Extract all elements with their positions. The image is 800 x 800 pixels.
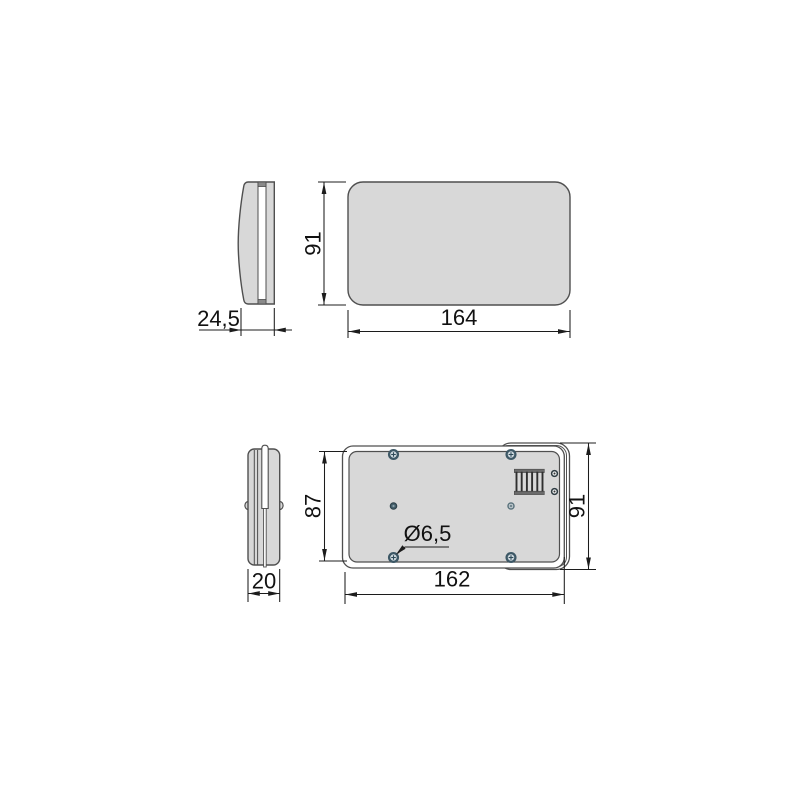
dimension-front-width: 164: [348, 305, 570, 338]
dimension-label-base-depth: 20: [252, 569, 276, 594]
back-inner-panel: [349, 452, 560, 563]
arrowhead: [346, 592, 358, 597]
dimension-label-side-depth: 24,5: [197, 306, 240, 331]
hook-tab: [262, 445, 268, 508]
centre-hole-right: [508, 503, 514, 509]
mounting-screw-top-left: [389, 450, 398, 459]
arrowhead: [322, 293, 327, 305]
side-profile-bottom-cap: [258, 300, 266, 305]
side-view-bottom: [245, 445, 283, 567]
edge-screw-lower: [552, 489, 558, 495]
dimension-front-height: 91: [301, 182, 347, 305]
arrowhead: [322, 549, 327, 561]
arrowhead: [274, 328, 286, 333]
dimension-label-front-height: 91: [301, 231, 326, 255]
back-view: [343, 443, 570, 570]
arrowhead: [322, 452, 327, 464]
dimension-label-back-inner-height: 87: [301, 494, 326, 518]
side-profile-body: [238, 182, 274, 304]
mounting-screw-top-right: [507, 450, 516, 459]
dimension-label-back-outer-height: 91: [565, 494, 590, 518]
side-profile-parting-strip: [258, 182, 266, 304]
mounting-screw-bottom-right: [507, 553, 516, 562]
arrowhead: [586, 444, 591, 456]
centre-hole-left: [390, 503, 396, 509]
arrowhead: [349, 329, 361, 334]
dimension-label-front-width: 164: [441, 305, 478, 330]
dimension-label-hole-diameter: Ø6,5: [404, 521, 452, 546]
dimension-back-inner-height: 87: [301, 452, 348, 562]
arrowhead: [322, 183, 327, 195]
arrowhead: [586, 558, 591, 570]
technical-drawing-page: 91 164 24,5: [0, 0, 800, 800]
dimension-base-depth: 20: [248, 569, 280, 603]
dimension-side-depth: 24,5: [197, 306, 292, 336]
side-profile-top-cap: [258, 182, 266, 187]
dimension-label-back-width: 162: [434, 567, 471, 592]
front-face: [348, 182, 570, 305]
edge-screw-upper: [552, 471, 558, 477]
arrowhead: [552, 592, 564, 597]
mounting-screw-bottom-left: [389, 553, 398, 562]
arrowhead: [558, 329, 570, 334]
side-view-top: [238, 182, 274, 304]
hook-slot: [264, 509, 267, 568]
enclosure-technical-drawing: 91 164 24,5: [0, 0, 800, 800]
front-view: [348, 182, 570, 305]
